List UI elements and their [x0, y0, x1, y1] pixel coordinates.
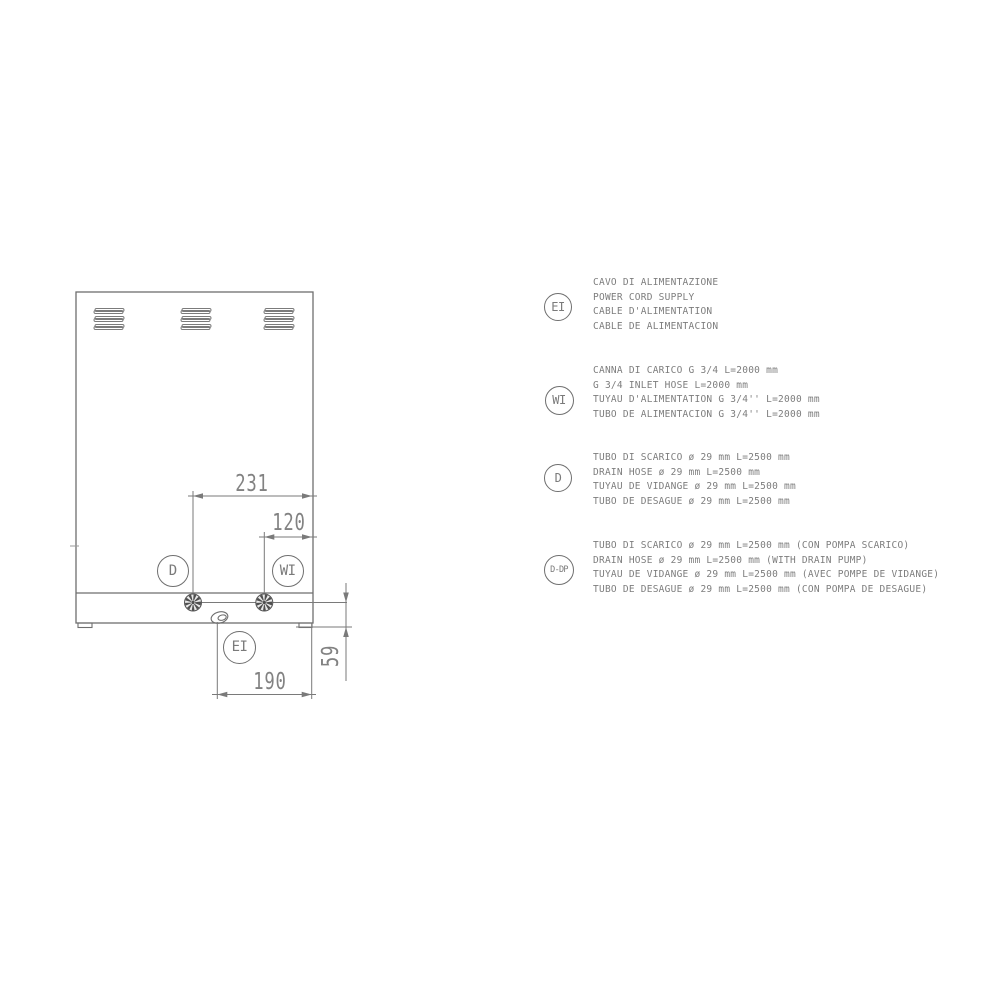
legend-text-line: TUYAU DE VIDANGE ø 29 mm L=2500 mm: [593, 480, 796, 495]
water-inlet-connector-rosette: [256, 594, 273, 611]
legend-symbol-d: D: [544, 464, 572, 492]
legend-text-line: CABLE D'ALIMENTATION: [593, 305, 718, 320]
legend-text-line: CAVO DI ALIMENTAZIONE: [593, 276, 718, 291]
legend-symbol-wi: WI: [545, 386, 574, 415]
appliance-rear-view-drawing: [0, 0, 1000, 1000]
legend-text-line: TUBO DI SCARICO ø 29 mm L=2500 mm (CON P…: [593, 539, 939, 554]
dimension-190-label: 190: [248, 670, 293, 694]
legend-text-line: DRAIN HOSE ø 29 mm L=2500 mm (WITH DRAIN…: [593, 554, 939, 569]
vent-louvers-right: [264, 309, 294, 330]
legend-text-line: TUBO DE DESAGUE ø 29 mm L=2500 mm: [593, 495, 796, 510]
legend-text-line: DRAIN HOSE ø 29 mm L=2500 mm: [593, 466, 796, 481]
legend-symbol-ei: EI: [544, 293, 572, 321]
cabinet-feet: [78, 623, 312, 628]
dimension-231: [188, 491, 317, 603]
legend-item-drain-hose: TUBO DI SCARICO ø 29 mm L=2500 mm DRAIN …: [593, 451, 796, 509]
legend-symbol-d-dp: D-DP: [544, 555, 574, 585]
legend-text-line: TUBO DE DESAGUE ø 29 mm L=2500 mm (CON P…: [593, 583, 939, 598]
vent-louvers-center: [181, 309, 211, 330]
vent-louvers-left: [94, 309, 124, 330]
legend-text-line: POWER CORD SUPPLY: [593, 291, 718, 306]
installation-drawing-page: 231 120 190 59 D WI EI EI WI D D-DP CAVO…: [0, 0, 1000, 1000]
electric-inlet-callout: EI: [223, 631, 256, 664]
legend-text-line: TUBO DE ALIMENTACION G 3/4'' L=2000 mm: [593, 408, 820, 423]
drain-callout: D: [157, 555, 189, 587]
legend-text-line: TUYAU D'ALIMENTATION G 3/4'' L=2000 mm: [593, 393, 820, 408]
legend-text-line: CABLE DE ALIMENTACION: [593, 320, 718, 335]
legend-item-inlet-hose: CANNA DI CARICO G 3/4 L=2000 mm G 3/4 IN…: [593, 364, 820, 422]
legend-text-line: CANNA DI CARICO G 3/4 L=2000 mm: [593, 364, 820, 379]
legend-text-line: G 3/4 INLET HOSE L=2000 mm: [593, 379, 820, 394]
legend-item-drain-hose-pump: TUBO DI SCARICO ø 29 mm L=2500 mm (CON P…: [593, 539, 939, 597]
dimension-231-label: 231: [230, 472, 275, 496]
legend-text-line: TUBO DI SCARICO ø 29 mm L=2500 mm: [593, 451, 796, 466]
legend-text-line: TUYAU DE VIDANGE ø 29 mm L=2500 mm (AVEC…: [593, 568, 939, 583]
drain-connector-rosette: [185, 594, 202, 611]
legend-item-power-cord: CAVO DI ALIMENTAZIONE POWER CORD SUPPLY …: [593, 276, 718, 334]
water-inlet-callout: WI: [272, 555, 304, 587]
dimension-120-label: 120: [267, 511, 312, 535]
dimension-59-label: 59: [319, 634, 343, 679]
